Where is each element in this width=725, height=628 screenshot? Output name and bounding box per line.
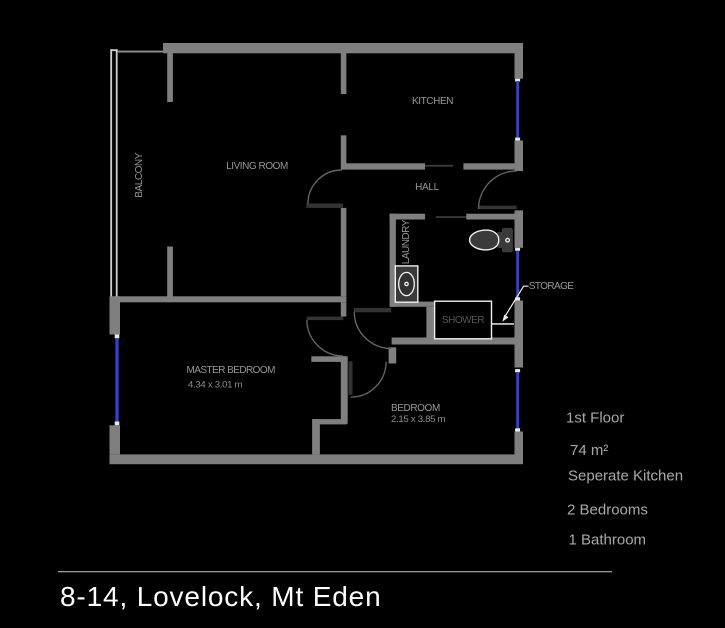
svg-text:STORAGE: STORAGE [529,281,574,292]
svg-text:LIVING ROOM: LIVING ROOM [226,161,288,172]
svg-text:BALCONY: BALCONY [134,152,145,197]
svg-text:2.15 x 3.85 m: 2.15 x 3.85 m [391,414,446,425]
svg-text:74 m²: 74 m² [570,442,608,459]
svg-text:Seperate Kitchen: Seperate Kitchen [568,468,683,485]
svg-text:KITCHEN: KITCHEN [412,96,453,107]
svg-text:MASTER BEDROOM: MASTER BEDROOM [187,365,276,376]
svg-text:BEDROOM: BEDROOM [391,403,440,414]
svg-text:8-14, Lovelock, Mt Eden: 8-14, Lovelock, Mt Eden [60,581,382,612]
svg-text:LAUNDRY: LAUNDRY [401,219,412,264]
svg-text:HALL: HALL [415,182,440,193]
svg-text:1st Floor: 1st Floor [566,409,624,426]
svg-text:SHOWER: SHOWER [442,315,484,326]
svg-text:4.34 x 3.01 m: 4.34 x 3.01 m [188,380,243,391]
svg-text:1 Bathroom: 1 Bathroom [569,531,647,548]
svg-text:2 Bedrooms: 2 Bedrooms [567,502,648,519]
